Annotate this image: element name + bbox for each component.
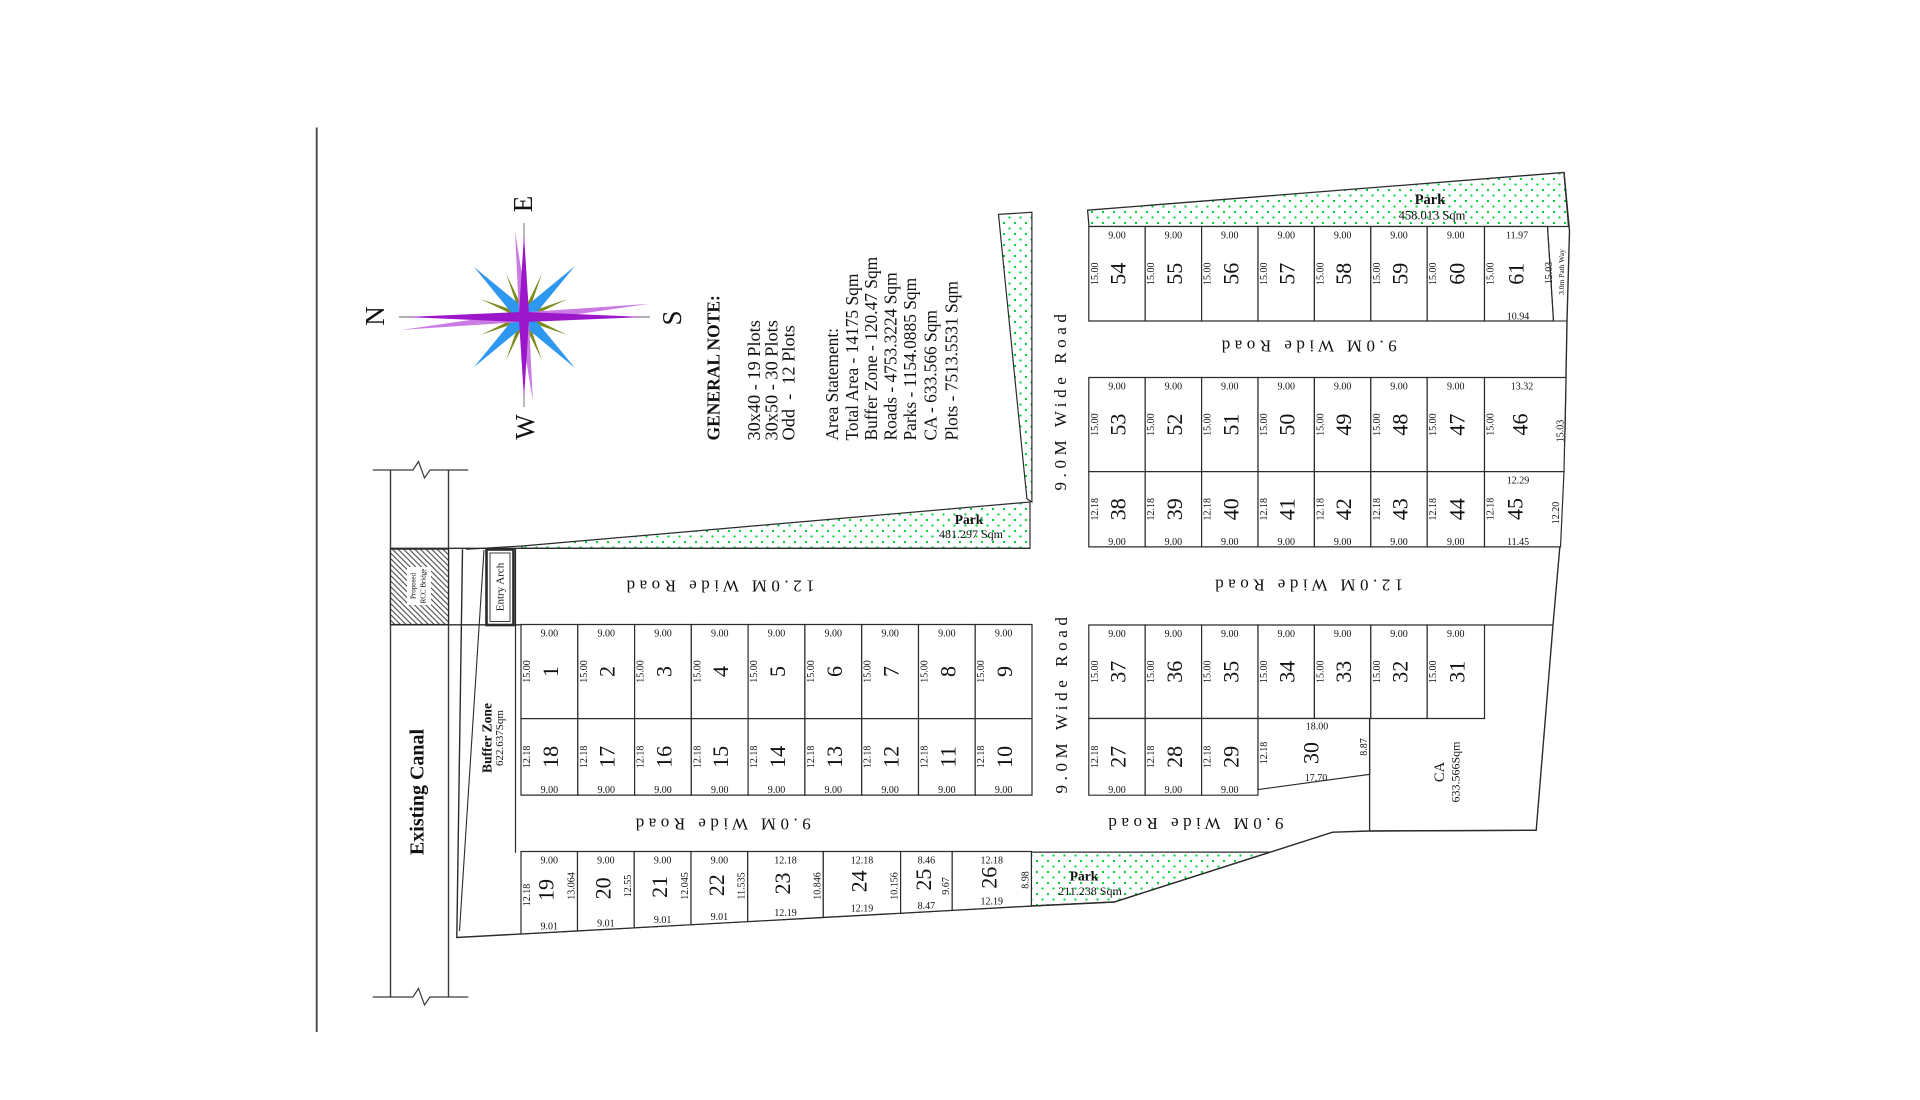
svg-text:17.70: 17.70 [1305, 773, 1328, 784]
svg-text:Buffer Zone: Buffer Zone [480, 703, 495, 773]
svg-text:11: 11 [935, 746, 960, 767]
svg-text:31: 31 [1444, 661, 1469, 683]
svg-text:58: 58 [1331, 263, 1356, 285]
svg-text:15.00: 15.00 [1372, 263, 1383, 286]
svg-text:15.00: 15.00 [863, 660, 874, 683]
svg-text:12: 12 [879, 746, 904, 768]
svg-text:9.00: 9.00 [1277, 382, 1295, 393]
svg-text:622.637Sqm: 622.637Sqm [494, 710, 506, 766]
svg-text:15.00: 15.00 [1259, 661, 1270, 684]
svg-text:9.00: 9.00 [1108, 537, 1126, 548]
svg-text:15.00: 15.00 [976, 660, 987, 683]
svg-text:CA - 633.566 Sqm: CA - 633.566 Sqm [921, 310, 941, 441]
svg-text:9.00: 9.00 [541, 629, 559, 640]
svg-text:18: 18 [538, 746, 563, 768]
svg-text:57: 57 [1275, 263, 1300, 285]
svg-text:49: 49 [1331, 414, 1356, 436]
svg-text:12.29: 12.29 [1507, 476, 1530, 487]
svg-text:9.0M Wide Road: 9.0M Wide Road [1052, 613, 1071, 794]
svg-text:9.00: 9.00 [1390, 382, 1408, 393]
svg-text:12.18: 12.18 [1315, 498, 1326, 521]
svg-text:15.00: 15.00 [1372, 661, 1383, 684]
svg-text:12.18: 12.18 [692, 746, 703, 769]
svg-text:15.00: 15.00 [1428, 413, 1439, 436]
svg-text:55: 55 [1162, 263, 1187, 285]
svg-text:10.846: 10.846 [812, 872, 823, 900]
svg-text:24: 24 [847, 870, 872, 892]
svg-text:211.238 Sqm: 211.238 Sqm [1058, 884, 1122, 898]
svg-text:25: 25 [911, 869, 936, 891]
svg-text:12.18: 12.18 [1146, 498, 1157, 521]
svg-text:Entry Arch: Entry Arch [495, 562, 507, 611]
svg-text:9.0M Wide Road: 9.0M Wide Road [631, 815, 811, 834]
svg-text:Park: Park [1415, 192, 1447, 208]
svg-text:CA: CA [1432, 761, 1448, 782]
svg-text:15.00: 15.00 [1146, 661, 1157, 684]
svg-text:15.00: 15.00 [806, 660, 817, 683]
svg-text:9.00: 9.00 [1108, 629, 1126, 640]
svg-text:12.18: 12.18 [522, 884, 533, 907]
svg-text:46: 46 [1508, 414, 1533, 436]
svg-text:9.00: 9.00 [1165, 537, 1183, 548]
svg-text:GENERAL NOTE:: GENERAL NOTE: [704, 295, 724, 440]
svg-text:15.00: 15.00 [1372, 413, 1383, 436]
svg-text:13.064: 13.064 [567, 872, 578, 900]
svg-text:15.00: 15.00 [749, 660, 760, 683]
svg-text:9.00: 9.00 [1221, 537, 1239, 548]
svg-text:17: 17 [595, 746, 620, 768]
svg-text:9.00: 9.00 [1334, 382, 1352, 393]
svg-text:15.00: 15.00 [1203, 661, 1214, 684]
svg-text:15.00: 15.00 [1486, 263, 1497, 286]
svg-text:7: 7 [879, 666, 904, 677]
svg-text:32: 32 [1388, 661, 1413, 683]
svg-text:61: 61 [1504, 263, 1529, 285]
svg-text:48: 48 [1388, 414, 1413, 436]
svg-text:9.00: 9.00 [995, 785, 1013, 796]
svg-text:15.00: 15.00 [1146, 413, 1157, 436]
svg-text:12.18: 12.18 [1090, 498, 1101, 521]
svg-text:12.18: 12.18 [806, 746, 817, 769]
svg-text:56: 56 [1218, 263, 1243, 285]
svg-text:9.00: 9.00 [768, 785, 786, 796]
svg-text:12.18: 12.18 [1372, 498, 1383, 521]
svg-text:50: 50 [1275, 414, 1300, 436]
svg-text:15.00: 15.00 [1259, 413, 1270, 436]
svg-text:15.00: 15.00 [1315, 661, 1326, 684]
svg-text:15.00: 15.00 [1090, 263, 1101, 286]
svg-text:51: 51 [1218, 414, 1243, 436]
svg-text:27: 27 [1106, 746, 1131, 768]
svg-text:9.00: 9.00 [1165, 382, 1183, 393]
svg-text:15.00: 15.00 [636, 660, 647, 683]
svg-text:9.00: 9.00 [1221, 629, 1239, 640]
svg-text:12.18: 12.18 [522, 746, 533, 769]
svg-text:9.00: 9.00 [1447, 537, 1465, 548]
svg-text:14: 14 [765, 746, 790, 768]
svg-text:12.20: 12.20 [1551, 502, 1562, 525]
svg-text:11.535: 11.535 [737, 872, 748, 899]
svg-text:12.55: 12.55 [623, 875, 634, 898]
svg-text:12.18: 12.18 [579, 746, 590, 769]
svg-text:15.00: 15.00 [1428, 263, 1439, 286]
svg-text:12.19: 12.19 [851, 904, 874, 915]
svg-text:9.00: 9.00 [1277, 537, 1295, 548]
svg-text:23: 23 [770, 873, 795, 895]
svg-text:6: 6 [822, 666, 847, 677]
svg-text:12.18: 12.18 [1146, 746, 1157, 769]
svg-text:W: W [510, 414, 540, 440]
svg-text:12.18: 12.18 [981, 856, 1004, 867]
svg-text:9.0M Wide Road: 9.0M Wide Road [1051, 310, 1070, 491]
svg-text:3: 3 [652, 666, 677, 677]
svg-text:9.0M Wide Road: 9.0M Wide Road [1217, 337, 1397, 356]
svg-text:9.00: 9.00 [881, 629, 899, 640]
svg-text:9.00: 9.00 [1108, 231, 1126, 242]
svg-text:9.00: 9.00 [1277, 629, 1295, 640]
svg-text:22: 22 [704, 874, 729, 896]
svg-text:9.00: 9.00 [1390, 629, 1408, 640]
svg-text:9.00: 9.00 [1447, 629, 1465, 640]
svg-text:42: 42 [1331, 498, 1356, 520]
svg-text:12.18: 12.18 [749, 746, 760, 769]
svg-text:Park: Park [955, 512, 984, 527]
svg-text:19: 19 [534, 879, 559, 901]
svg-text:12.0M Wide Road: 12.0M Wide Road [1211, 576, 1404, 595]
svg-text:9.00: 9.00 [1165, 629, 1183, 640]
svg-text:9.00: 9.00 [541, 785, 559, 796]
svg-text:Buffer Zone - 120.47 Sqm: Buffer Zone - 120.47 Sqm [861, 256, 881, 440]
svg-text:15.00: 15.00 [1203, 263, 1214, 286]
svg-text:12.045: 12.045 [680, 872, 691, 900]
svg-text:41: 41 [1275, 498, 1300, 520]
svg-text:9.00: 9.00 [540, 856, 558, 867]
svg-text:11.97: 11.97 [1506, 231, 1528, 242]
svg-text:12.19: 12.19 [981, 897, 1004, 908]
svg-text:29: 29 [1218, 746, 1243, 768]
svg-text:8.47: 8.47 [918, 901, 936, 912]
svg-text:30: 30 [1299, 742, 1324, 764]
svg-text:9.00: 9.00 [597, 856, 615, 867]
svg-text:15.00: 15.00 [522, 660, 533, 683]
svg-text:Proposed: Proposed [410, 572, 418, 599]
svg-text:15.00: 15.00 [1259, 263, 1270, 286]
svg-text:47: 47 [1444, 414, 1469, 436]
svg-text:15.00: 15.00 [1486, 413, 1497, 436]
svg-text:15.00: 15.00 [579, 660, 590, 683]
svg-text:12.18: 12.18 [1259, 742, 1270, 765]
svg-text:13.32: 13.32 [1511, 382, 1534, 393]
svg-text:9.00: 9.00 [938, 629, 956, 640]
svg-text:52: 52 [1162, 414, 1187, 436]
svg-text:12.18: 12.18 [1428, 498, 1439, 521]
svg-text:Total Area - 14175 Sqm: Total Area - 14175 Sqm [842, 273, 862, 440]
svg-text:9.67: 9.67 [941, 877, 952, 895]
svg-text:40: 40 [1218, 498, 1243, 520]
svg-text:12.18: 12.18 [1259, 498, 1270, 521]
svg-text:9.00: 9.00 [881, 785, 899, 796]
svg-text:Plots - 7513.5531 Sqm: Plots - 7513.5531 Sqm [942, 281, 962, 441]
svg-text:9.00: 9.00 [825, 785, 843, 796]
svg-text:9.00: 9.00 [1221, 231, 1239, 242]
svg-text:60: 60 [1444, 263, 1469, 285]
svg-text:12.18: 12.18 [863, 746, 874, 769]
svg-text:15.00: 15.00 [1315, 263, 1326, 286]
svg-text:9.00: 9.00 [1221, 382, 1239, 393]
svg-text:9.0M Wide Road: 9.0M Wide Road [1104, 814, 1284, 833]
svg-text:33: 33 [1331, 661, 1356, 683]
svg-text:9.00: 9.00 [1334, 231, 1352, 242]
svg-text:12.18: 12.18 [851, 856, 874, 867]
svg-text:S: S [657, 310, 687, 325]
svg-text:Park: Park [1070, 869, 1099, 884]
svg-text:9.00: 9.00 [1165, 785, 1183, 796]
svg-text:59: 59 [1388, 263, 1413, 285]
svg-text:12.18: 12.18 [774, 856, 797, 867]
svg-text:26: 26 [976, 867, 1001, 889]
svg-text:1: 1 [538, 666, 563, 677]
svg-text:2: 2 [595, 666, 620, 677]
svg-text:633.566Sqm: 633.566Sqm [1449, 741, 1463, 803]
svg-text:9.01: 9.01 [654, 915, 672, 926]
svg-text:9.00: 9.00 [768, 629, 786, 640]
svg-text:15.00: 15.00 [1090, 661, 1101, 684]
svg-text:Existing Canal: Existing Canal [407, 728, 429, 855]
svg-text:9.00: 9.00 [1221, 785, 1239, 796]
svg-text:34: 34 [1275, 661, 1300, 683]
svg-text:9.00: 9.00 [654, 629, 672, 640]
svg-text:12.18: 12.18 [636, 746, 647, 769]
svg-text:15.00: 15.00 [920, 660, 931, 683]
svg-text:9.01: 9.01 [711, 912, 729, 923]
svg-text:481.297 Sqm: 481.297 Sqm [939, 527, 1004, 541]
svg-text:9.00: 9.00 [938, 785, 956, 796]
svg-text:12.18: 12.18 [1203, 498, 1214, 521]
svg-text:15.00: 15.00 [1090, 413, 1101, 436]
svg-text:12.18: 12.18 [1090, 746, 1101, 769]
svg-text:Odd - 12 Plots: Odd - 12 Plots [779, 325, 799, 440]
svg-text:Roads - 4753.3224 Sqm: Roads - 4753.3224 Sqm [881, 272, 901, 441]
svg-text:36: 36 [1162, 661, 1187, 683]
svg-text:9.00: 9.00 [1277, 231, 1295, 242]
svg-text:458.013 Sqm: 458.013 Sqm [1399, 209, 1466, 223]
svg-text:9.00: 9.00 [1108, 382, 1126, 393]
svg-text:28: 28 [1162, 746, 1187, 768]
svg-text:9.00: 9.00 [597, 785, 615, 796]
svg-text:3.0m Path Way: 3.0m Path Way [1557, 249, 1566, 295]
svg-text:8.46: 8.46 [918, 856, 936, 867]
svg-text:13: 13 [822, 746, 847, 768]
svg-text:9.00: 9.00 [711, 856, 729, 867]
svg-text:45: 45 [1503, 498, 1528, 520]
svg-text:9.00: 9.00 [1447, 231, 1465, 242]
svg-text:12.18: 12.18 [1486, 498, 1497, 521]
svg-text:9.00: 9.00 [1447, 382, 1465, 393]
svg-text:21: 21 [647, 876, 672, 898]
svg-text:9.00: 9.00 [654, 856, 672, 867]
svg-text:9.00: 9.00 [1334, 629, 1352, 640]
svg-text:9.00: 9.00 [711, 785, 729, 796]
svg-text:10.156: 10.156 [890, 872, 901, 900]
svg-text:10.94: 10.94 [1507, 312, 1530, 323]
svg-text:9.00: 9.00 [1108, 785, 1126, 796]
svg-text:12.19: 12.19 [774, 908, 797, 919]
svg-text:9.00: 9.00 [1390, 231, 1408, 242]
svg-text:9.00: 9.00 [597, 629, 615, 640]
svg-text:16: 16 [652, 746, 677, 768]
svg-text:Parks - 1154.0885 Sqm: Parks - 1154.0885 Sqm [900, 277, 920, 440]
svg-text:15.00: 15.00 [1146, 263, 1157, 286]
svg-text:9.00: 9.00 [1390, 537, 1408, 548]
svg-text:15.00: 15.00 [692, 660, 703, 683]
svg-text:43: 43 [1388, 498, 1413, 520]
svg-text:37: 37 [1106, 661, 1131, 683]
svg-text:9.00: 9.00 [825, 629, 843, 640]
svg-text:4: 4 [708, 666, 733, 677]
svg-text:15: 15 [708, 746, 733, 768]
svg-text:12.18: 12.18 [976, 746, 987, 769]
svg-text:12.18: 12.18 [920, 746, 931, 769]
svg-text:9.00: 9.00 [1334, 537, 1352, 548]
svg-text:E: E [508, 196, 538, 213]
svg-text:8: 8 [935, 666, 960, 677]
svg-text:15.00: 15.00 [1203, 413, 1214, 436]
svg-text:9.00: 9.00 [1165, 231, 1183, 242]
svg-text:53: 53 [1106, 414, 1131, 436]
svg-text:8.87: 8.87 [1359, 738, 1370, 756]
svg-text:15.00: 15.00 [1428, 661, 1439, 684]
svg-text:20: 20 [590, 877, 615, 899]
svg-text:5: 5 [765, 666, 790, 677]
svg-text:15.00: 15.00 [1315, 413, 1326, 436]
svg-text:11.45: 11.45 [1507, 537, 1529, 548]
svg-text:9: 9 [992, 666, 1017, 677]
svg-text:12.18: 12.18 [1203, 746, 1214, 769]
svg-text:9.01: 9.01 [597, 918, 615, 929]
svg-text:9.00: 9.00 [711, 629, 729, 640]
svg-text:10: 10 [992, 746, 1017, 768]
svg-text:9.01: 9.01 [540, 921, 558, 932]
svg-text:54: 54 [1106, 263, 1131, 285]
svg-text:9.00: 9.00 [654, 785, 672, 796]
svg-text:38: 38 [1106, 498, 1131, 520]
svg-text:8.98: 8.98 [1020, 871, 1031, 889]
svg-text:44: 44 [1444, 498, 1469, 520]
svg-text:39: 39 [1162, 498, 1187, 520]
svg-text:15.03: 15.03 [1556, 420, 1567, 443]
svg-text:18.00: 18.00 [1306, 722, 1329, 733]
svg-text:N: N [360, 306, 390, 326]
svg-text:Area Statement:: Area Statement: [822, 328, 842, 441]
svg-text:RCC Bridge: RCC Bridge [420, 569, 428, 604]
svg-text:12.0M Wide Road: 12.0M Wide Road [622, 577, 815, 596]
svg-text:9.00: 9.00 [995, 629, 1013, 640]
svg-text:35: 35 [1218, 661, 1243, 683]
